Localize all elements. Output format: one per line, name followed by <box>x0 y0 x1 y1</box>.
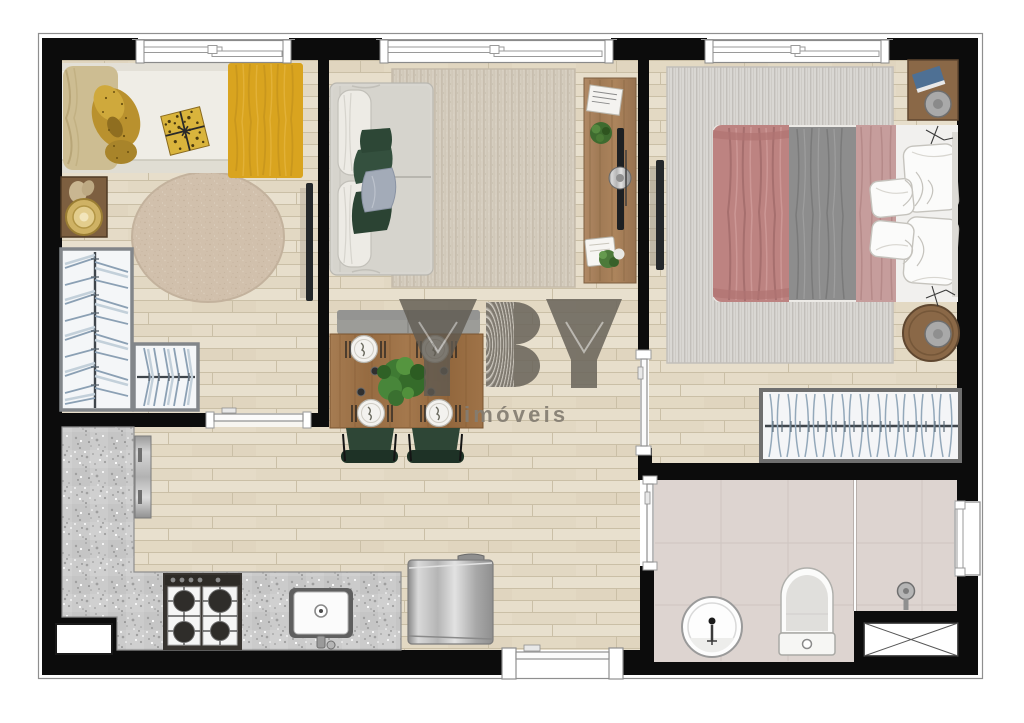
svg-text:imóveis: imóveis <box>464 402 568 427</box>
